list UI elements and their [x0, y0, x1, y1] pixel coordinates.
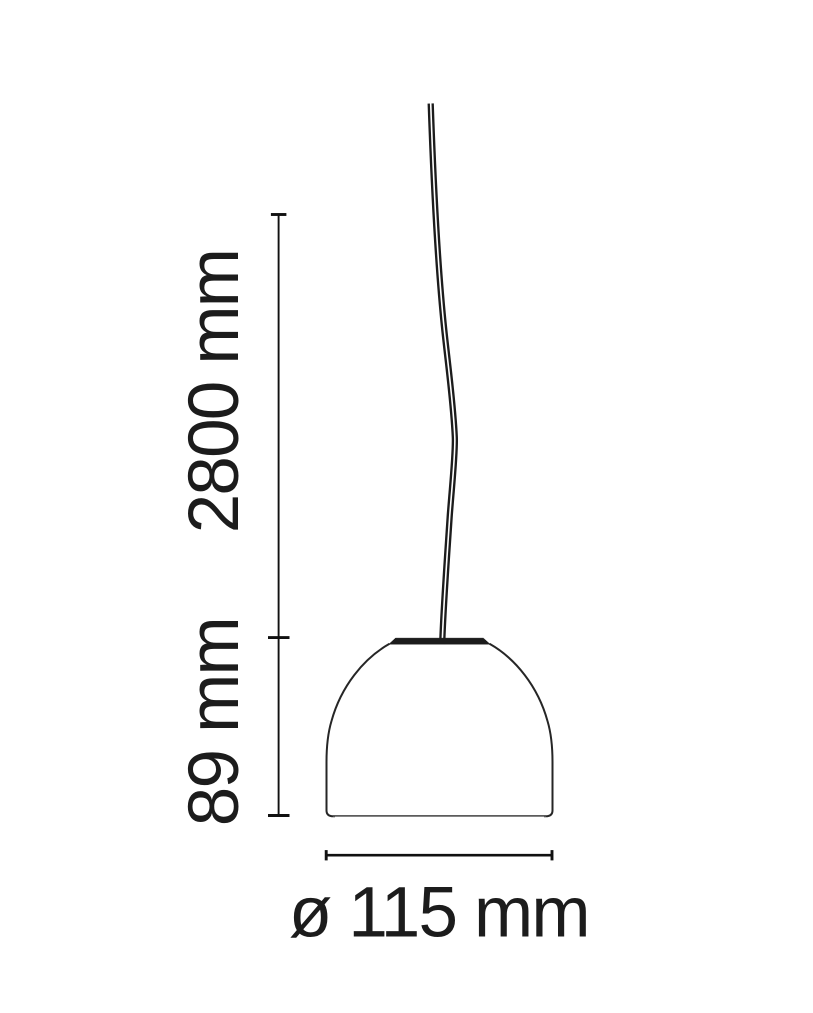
- svg-text:ø 115 mm: ø 115 mm: [289, 874, 589, 953]
- svg-text:2800 mm: 2800 mm: [175, 250, 254, 533]
- svg-text:89 mm: 89 mm: [175, 618, 254, 826]
